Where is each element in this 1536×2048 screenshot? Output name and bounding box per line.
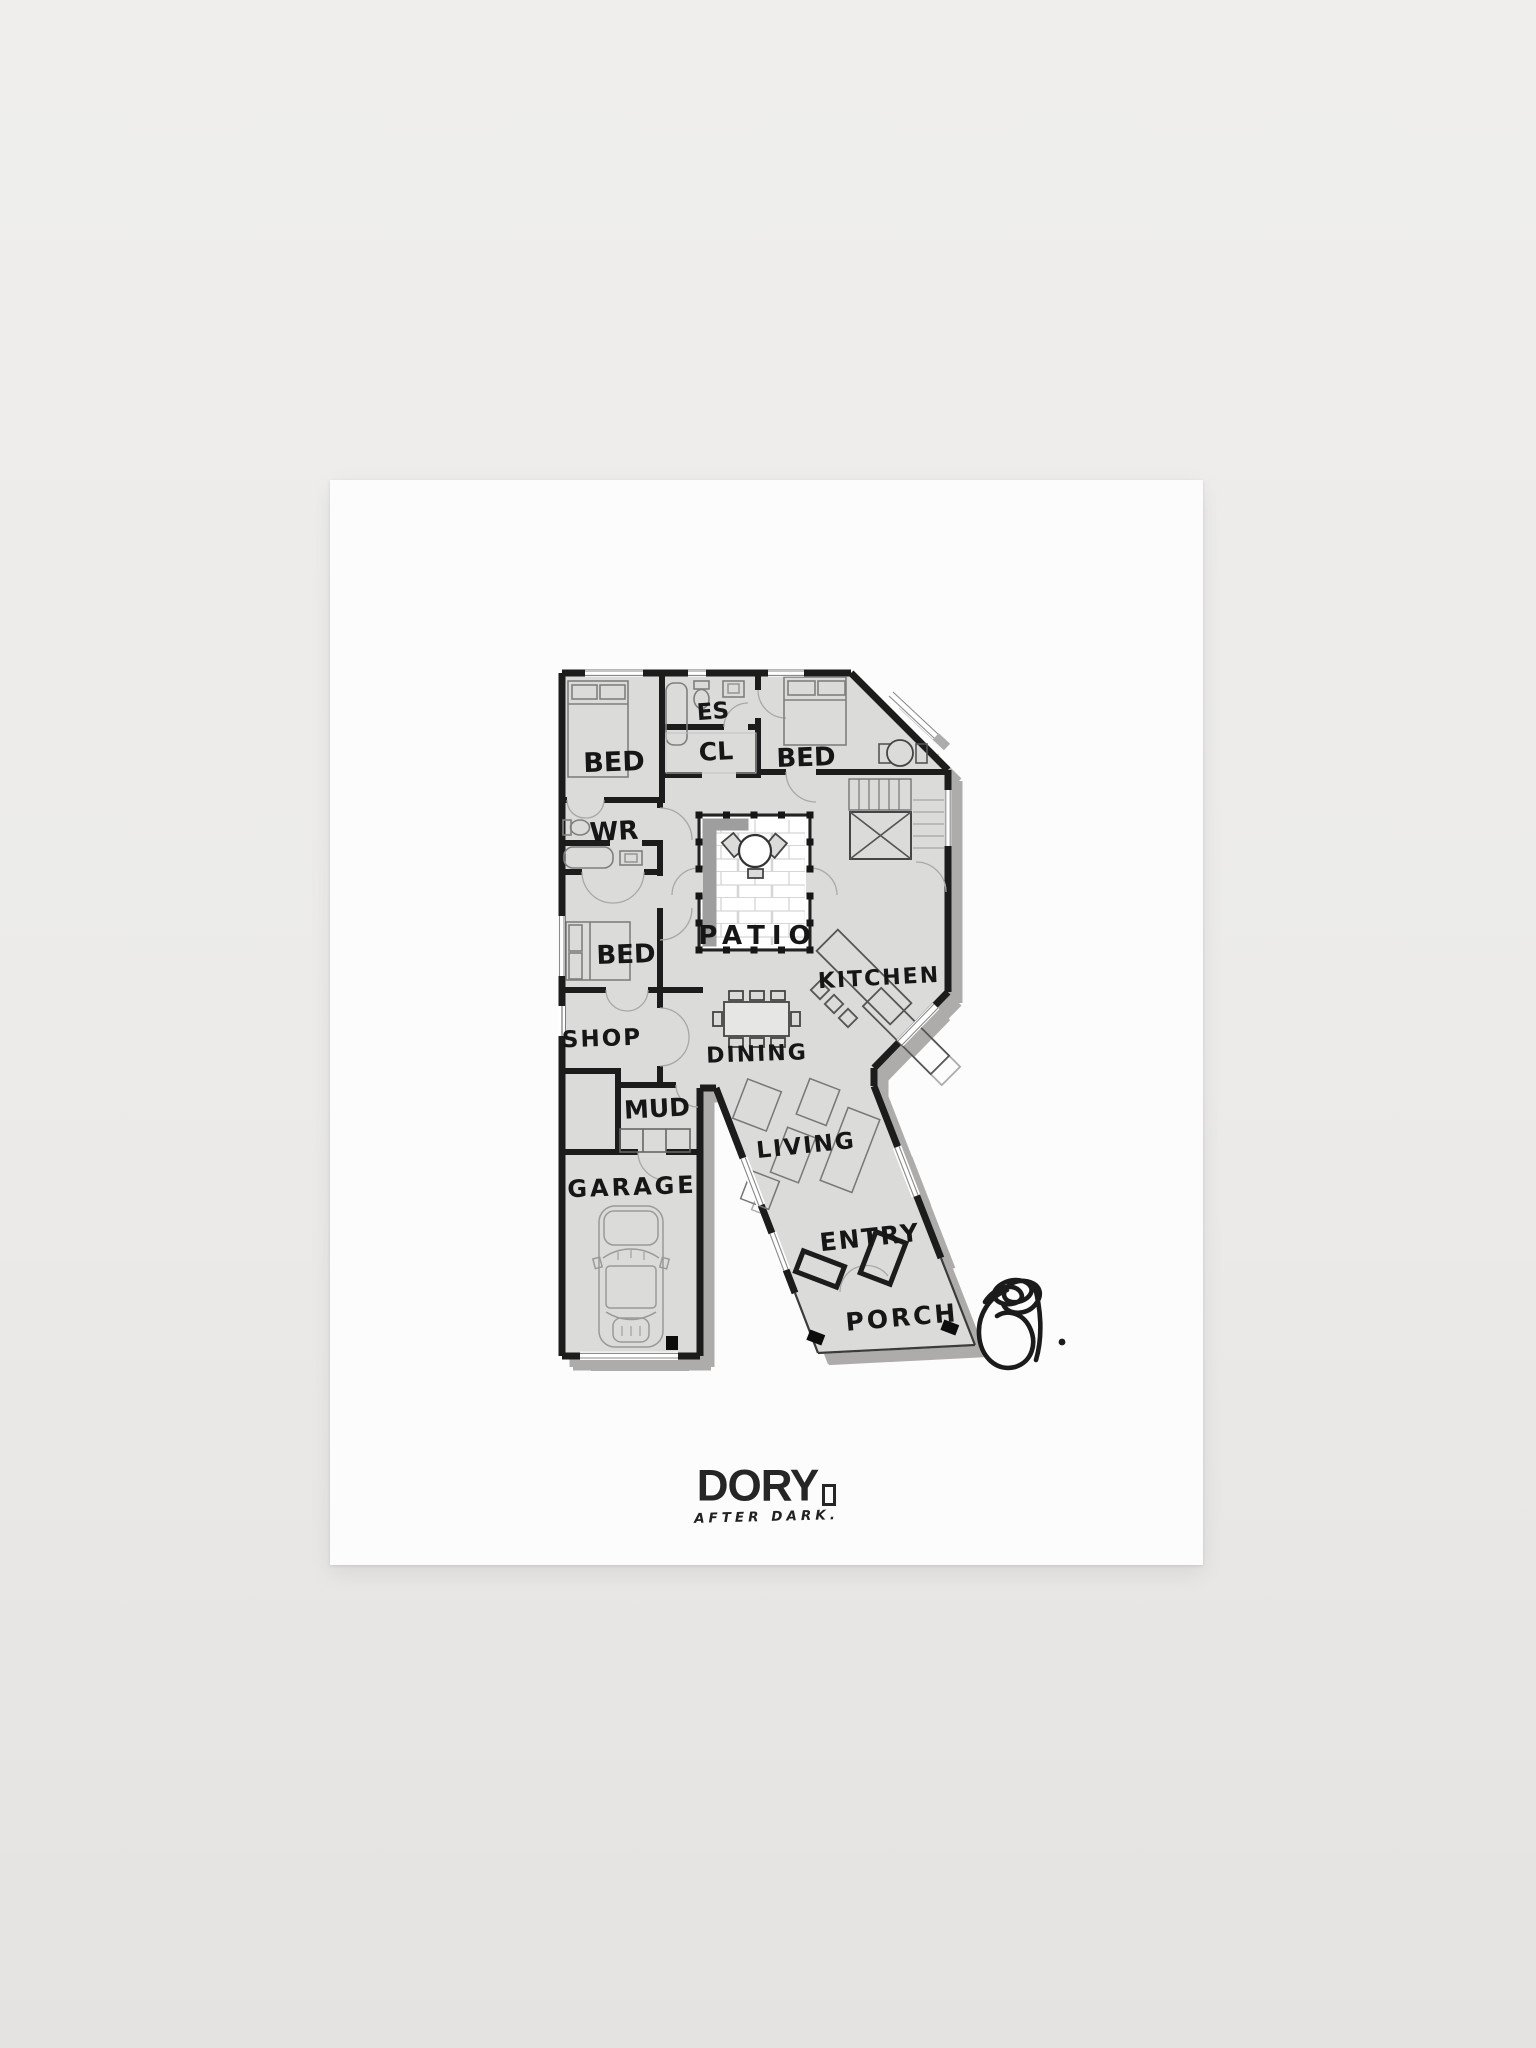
room-label-bed-3: BED [596,939,656,971]
room-label-bed-1: BED [583,746,645,779]
brand-name-row: DORY [330,1464,1203,1508]
room-label-garage: GARAGE [567,1171,697,1203]
room-label-mud: MUD [623,1092,690,1124]
poster: BED ES CL BED WR BED PATIO KITCHEN SHOP … [330,480,1203,1565]
room-label-dining: DINING [706,1040,808,1069]
room-label-shop: SHOP [561,1025,642,1054]
room-label-closet: CL [698,736,734,767]
floor-plan-letter-r: BED ES CL BED WR BED PATIO KITCHEN SHOP … [330,480,1203,1565]
door-icon [822,1484,836,1506]
room-label-ensuite: ES [696,698,730,726]
room-label-washroom: WR [589,816,639,849]
room-label-patio: PATIO [698,921,817,951]
brand-name: DORY [697,1464,819,1509]
product-photo-background: BED ES CL BED WR BED PATIO KITCHEN SHOP … [0,0,1536,2048]
floor-plan: BED ES CL BED WR BED PATIO KITCHEN SHOP … [558,670,975,1360]
brand-logo: DORY AFTER DARK. [330,1464,1203,1525]
room-label-bed-2: BED [776,742,836,774]
artist-signature [979,1280,1065,1368]
round-table [887,740,913,766]
